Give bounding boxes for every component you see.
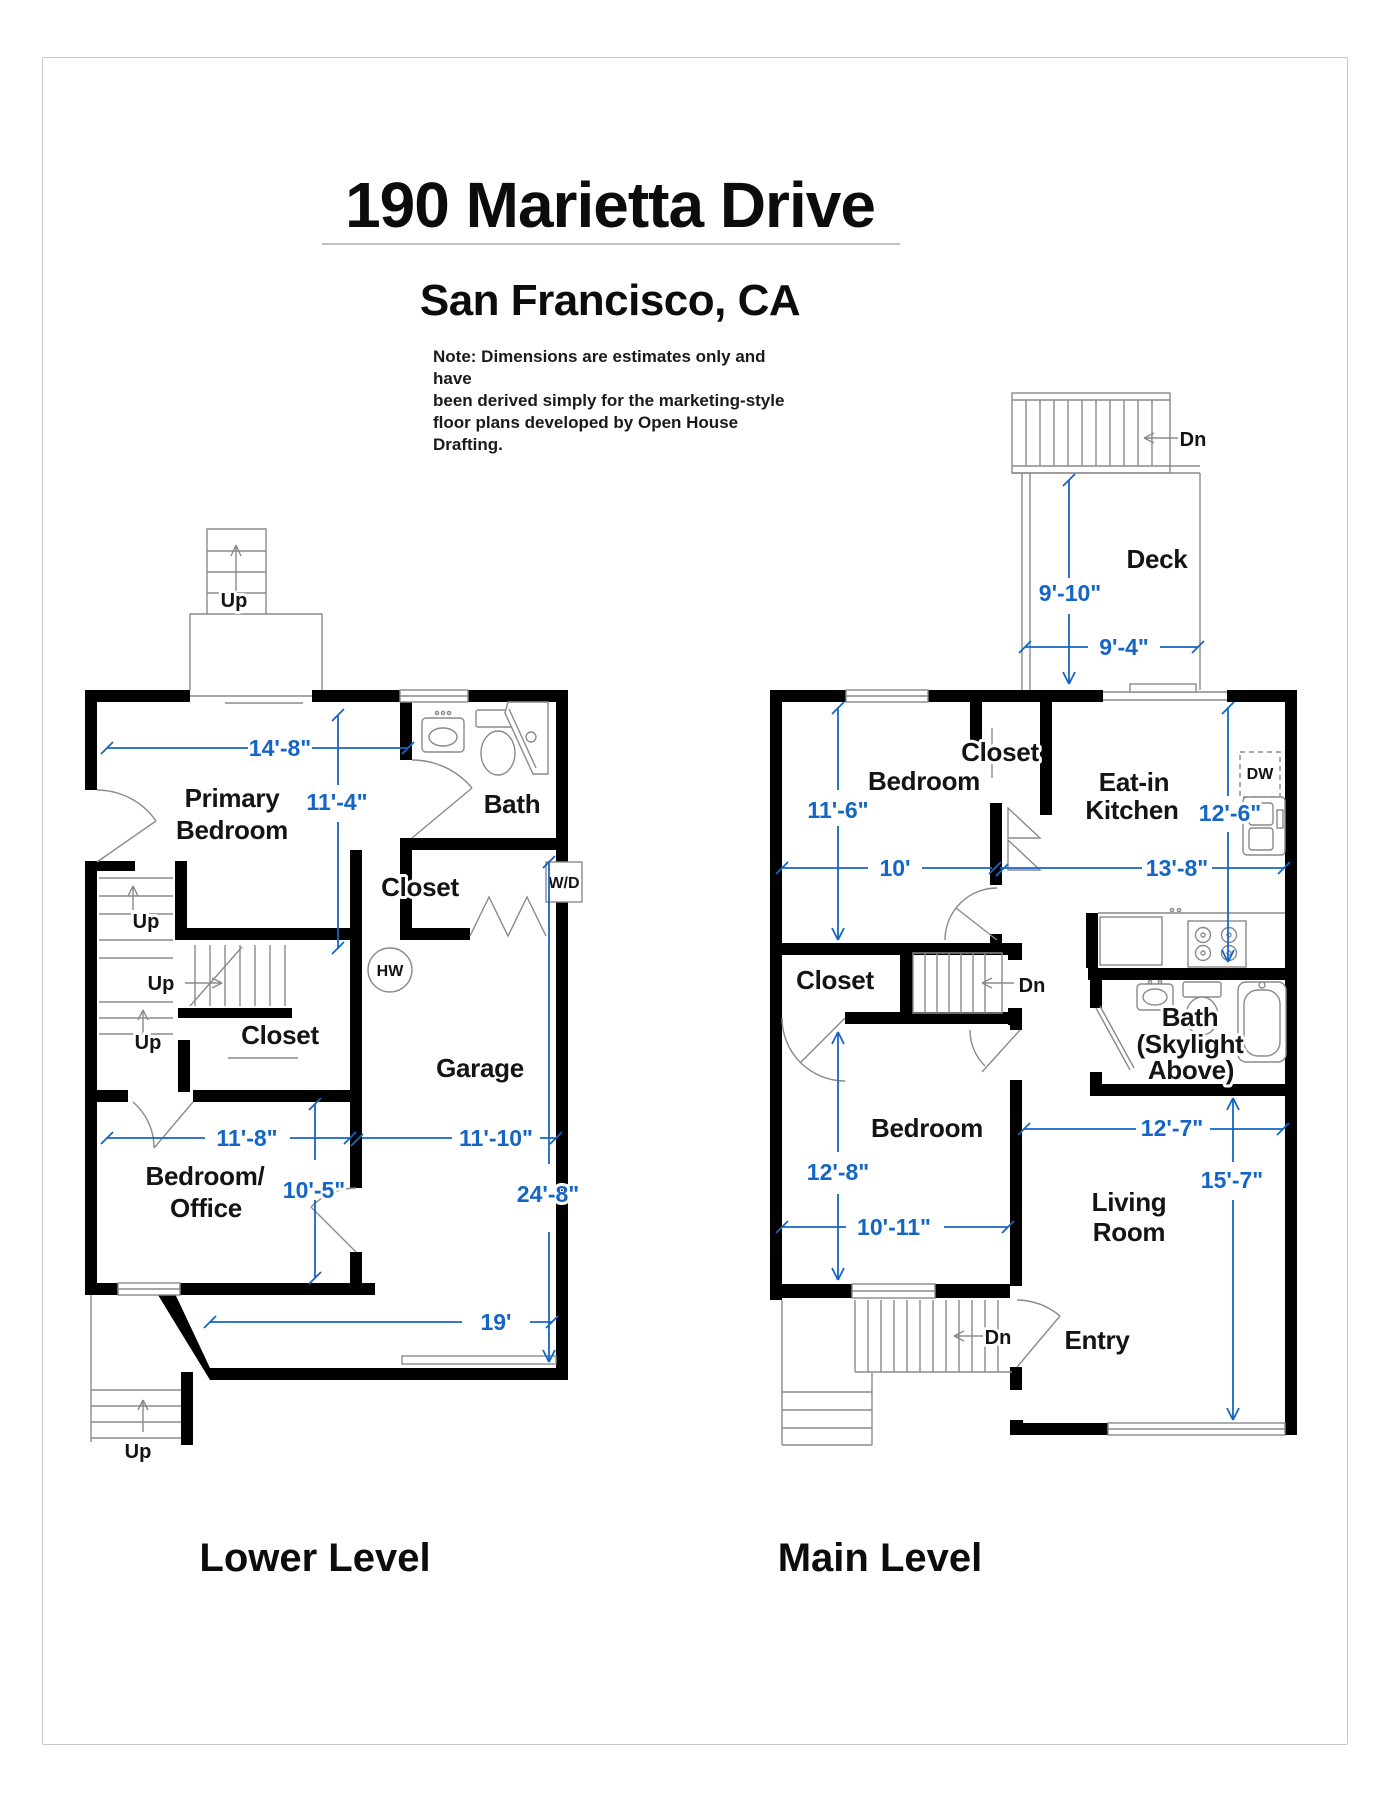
dim-garage-length: 19' (480, 1309, 511, 1335)
dim-primary-width: 14'-8" (249, 735, 311, 761)
room-label-living-2: Room (1093, 1217, 1165, 1247)
dim-deck-depth: 9'-10" (1039, 580, 1101, 606)
dim-bedroom-top-depth: 11'-6" (807, 797, 868, 823)
dim-living-depth: 15'-7" (1201, 1167, 1263, 1193)
room-label-kitchen-1: Eat-in (1099, 767, 1169, 797)
room-label-living-1: Living (1092, 1187, 1167, 1217)
up-label-stair2: Up (148, 973, 175, 995)
room-label-bath: Bath (484, 789, 541, 819)
dishwasher-label: DW (1247, 766, 1275, 783)
room-label-primary-bedroom-1: Primary (185, 783, 281, 813)
main-interior-stairs (913, 953, 1014, 1013)
room-label-bedroom-top: Bedroom (868, 766, 980, 796)
dim-bedroom-bottom-width: 10'-11" (857, 1214, 931, 1240)
lower-level-plan: Up (75, 450, 595, 1470)
lower-exterior-stair (91, 1295, 181, 1442)
room-label-entry: Entry (1065, 1325, 1131, 1355)
lower-level-caption: Lower Level (85, 1536, 545, 1581)
dim-garage-depth: 24'-8" (517, 1181, 579, 1207)
up-label-stair3: Up (135, 1032, 162, 1054)
room-label-bedroom-office-1: Bedroom/ (146, 1161, 265, 1191)
floor-plan-sheet: 190 Marietta Drive San Francisco, CA Not… (0, 0, 1391, 1800)
up-label-stair1: Up (133, 911, 160, 933)
garage-door (402, 1356, 556, 1364)
toilet-tank (1183, 982, 1221, 997)
dim-primary-depth: 11'-4" (306, 789, 367, 815)
room-label-closet-lower: Closet (241, 1020, 319, 1050)
room-label-primary-bedroom-2: Bedroom (176, 815, 288, 845)
dim-kitchen-width: 13'-8" (1146, 855, 1208, 881)
porch-stair (190, 529, 322, 703)
dn-label-stairs: Dn (1019, 975, 1046, 997)
room-label-garage: Garage (436, 1053, 524, 1083)
up-label-exterior: Up (125, 1441, 152, 1463)
room-label-closet-mid: Closet (796, 965, 874, 995)
dim-living-width: 12'-7" (1141, 1115, 1203, 1141)
room-label-bath-1: Bath (1162, 1002, 1219, 1032)
lower-bath-fixtures (422, 702, 548, 775)
dim-bedroom-bottom-depth: 12'-8" (807, 1159, 869, 1185)
up-label-porch: Up (221, 590, 248, 612)
dim-garage-width: 11'-10" (459, 1125, 533, 1151)
dim-bedroom-top-width: 10' (879, 855, 910, 881)
dim-deck-width: 9'-4" (1099, 634, 1149, 660)
room-label-closet-top: Closet (961, 737, 1039, 767)
room-label-kitchen-2: Kitchen (1085, 795, 1178, 825)
title-underline (322, 243, 900, 245)
dim-kitchen-depth: 12'-6" (1199, 800, 1261, 826)
dim-bedroom-office-width: 11'-8" (216, 1125, 277, 1151)
dn-label-deck: Dn (1180, 429, 1207, 451)
page-subtitle: San Francisco, CA (0, 276, 1220, 326)
bathtub (1238, 982, 1286, 1062)
room-label-bedroom-bottom: Bedroom (871, 1113, 983, 1143)
sliding-door-panel (1130, 684, 1196, 692)
room-label-closet-upper: Closet (381, 872, 459, 902)
room-label-bath-3: Above) (1148, 1055, 1234, 1085)
room-label-bedroom-office-2: Office (170, 1193, 242, 1223)
main-level-caption: Main Level (660, 1536, 1100, 1581)
toilet-bowl (481, 731, 515, 775)
bath-sink (422, 718, 464, 752)
dn-label-entry: Dn (985, 1327, 1012, 1349)
dim-bedroom-office-depth: 10'-5" (283, 1177, 345, 1203)
page-title: 190 Marietta Drive (0, 168, 1220, 242)
washer-dryer-label: W/D (548, 875, 579, 892)
entry-stairs (782, 1300, 1012, 1445)
room-label-deck: Deck (1127, 544, 1189, 574)
main-level-plan: Dn Deck (660, 330, 1320, 1460)
stove (1188, 921, 1246, 967)
refrigerator (1100, 917, 1162, 965)
water-heater-label: HW (377, 963, 405, 980)
